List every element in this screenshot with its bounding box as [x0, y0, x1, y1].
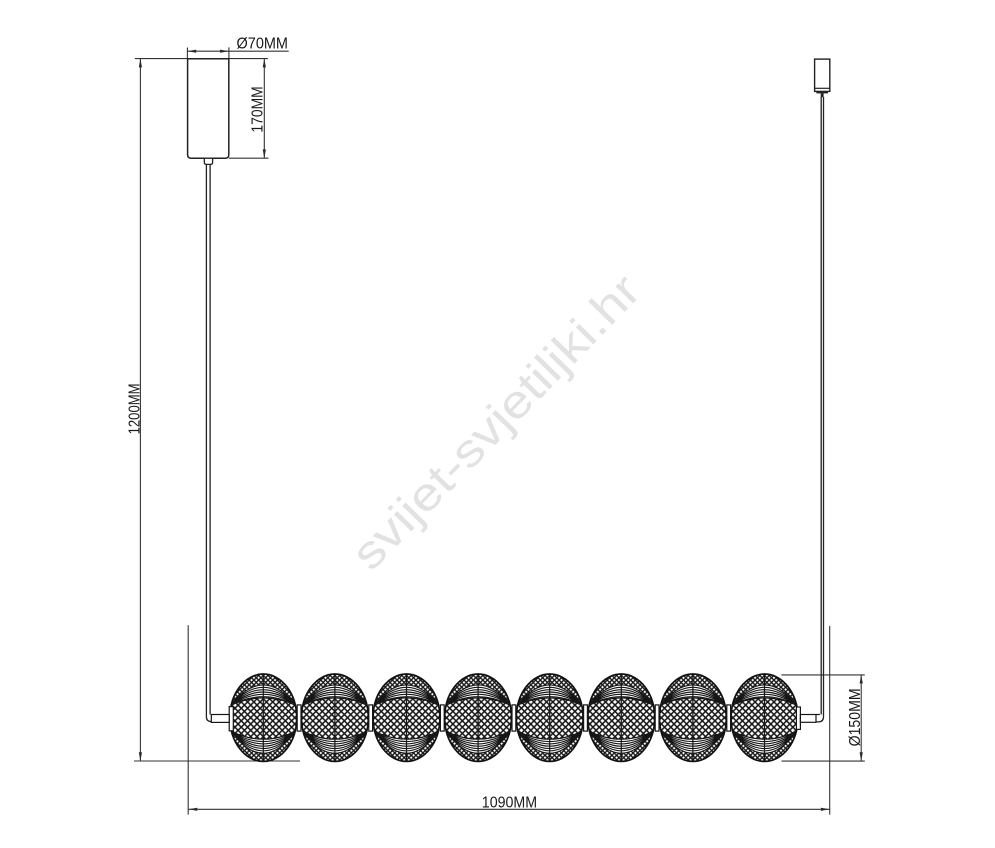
svg-text:170MM: 170MM	[250, 86, 267, 132]
svg-text:Ø150MM: Ø150MM	[847, 688, 864, 746]
svg-text:Ø70MM: Ø70MM	[237, 36, 289, 53]
svg-text:1200MM: 1200MM	[127, 383, 144, 434]
svg-text:1090MM: 1090MM	[482, 794, 537, 811]
